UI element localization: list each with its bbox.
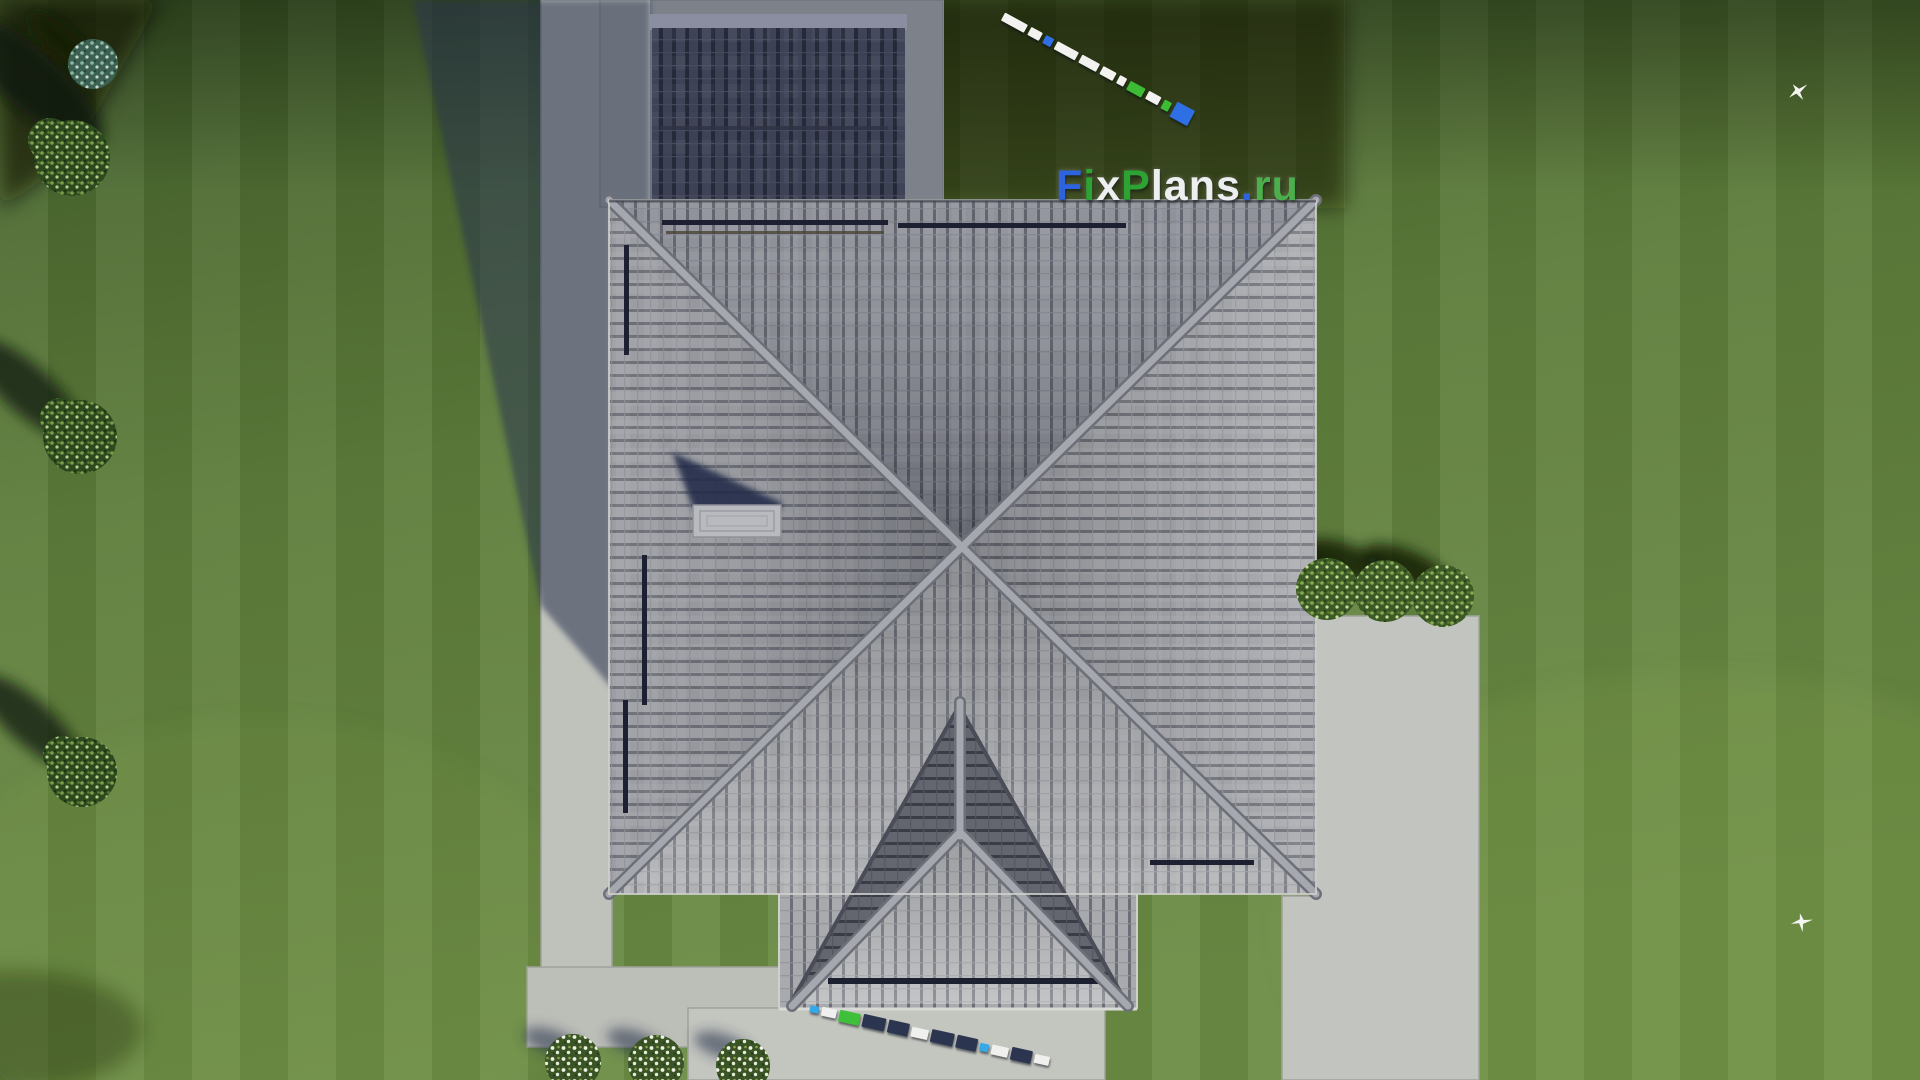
ruler_top-segment: [1145, 91, 1162, 106]
ruler_top-segment: [1161, 99, 1173, 112]
watermark-letter: i: [1083, 162, 1096, 211]
snow-guard-west-2: [642, 555, 647, 705]
snow-guard-east: [1150, 860, 1254, 865]
ruler_top-segment: [1126, 80, 1146, 97]
tree-teal: [68, 39, 118, 89]
ruler_top-segment: [1027, 27, 1043, 41]
watermark-letter: .: [1241, 162, 1254, 211]
bush: [1354, 560, 1416, 622]
watermark-letter: a: [1164, 162, 1189, 211]
watermark-letter: x: [1096, 162, 1121, 211]
bush: [1412, 565, 1474, 627]
ruler_top-segment: [1042, 35, 1054, 47]
wing-snow-guard: [828, 978, 1100, 984]
main-roof: [609, 200, 1316, 1010]
watermark-letter: l: [1151, 162, 1164, 211]
walkway_train-segment: [979, 1042, 990, 1052]
annex-ridge-cap: [650, 14, 907, 30]
watermark-letter: r: [1254, 162, 1272, 211]
walkway_train-segment: [991, 1044, 1010, 1057]
ruler_top-segment: [1099, 66, 1116, 81]
walkway_train-segment: [910, 1026, 929, 1039]
snow-guard-north-2: [898, 223, 1126, 228]
snow-guard-west-1: [624, 245, 629, 355]
walkway_train-segment: [809, 1005, 819, 1014]
bush: [1296, 558, 1358, 620]
watermark-text: FixPlans.ru: [1056, 162, 1299, 211]
chimney-cap: [693, 505, 781, 537]
watermark: FixPlans.ru: [1056, 162, 1299, 211]
walkway_train-segment: [821, 1007, 838, 1019]
watermark-letter: F: [1056, 162, 1083, 211]
ruler_top-segment: [1116, 75, 1127, 87]
snow-guard-west-3: [623, 700, 628, 813]
watermark-letter: P: [1121, 162, 1151, 211]
site-plan-svg: [0, 0, 1920, 1080]
walkway_train-segment: [1034, 1054, 1051, 1066]
annex-roof: [650, 14, 907, 202]
annex-snow-guard: [660, 126, 888, 130]
watermark-letter: n: [1189, 162, 1216, 211]
snow-guard-north-1: [662, 220, 888, 225]
aerial-house-render: FixPlans.ru: [0, 0, 1920, 1080]
watermark-letter: u: [1272, 162, 1299, 211]
watermark-letter: s: [1216, 162, 1241, 211]
